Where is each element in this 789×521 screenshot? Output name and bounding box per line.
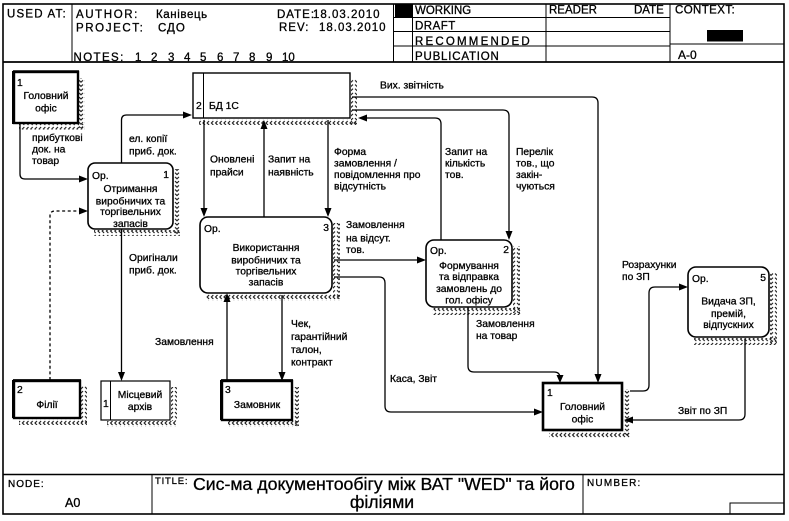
svg-text:6: 6 (217, 52, 223, 64)
svg-text:10: 10 (282, 52, 295, 64)
svg-text:запасів: запасів (113, 219, 148, 230)
svg-text:REV:: REV: (279, 22, 309, 34)
svg-text:тов., що: тов., що (516, 159, 555, 170)
svg-text:повідомлення про: повідомлення про (334, 170, 421, 181)
svg-text:талон,: талон, (291, 345, 322, 356)
svg-text:офіс: офіс (35, 103, 57, 115)
svg-text:архів: архів (128, 402, 153, 413)
svg-text:1: 1 (17, 78, 23, 89)
svg-text:та відправка: та відправка (439, 272, 499, 283)
svg-text:відпускних: відпускних (703, 320, 754, 331)
svg-text:замовлень до: замовлень до (436, 284, 502, 295)
svg-text:Формування: Формування (439, 261, 499, 272)
svg-text:чуються: чуються (516, 182, 555, 193)
svg-text:Головний: Головний (24, 91, 69, 102)
svg-text:наявність: наявність (268, 168, 314, 179)
svg-text:виробничих та: виробничих та (231, 255, 301, 267)
svg-text:Замовлення: Замовлення (476, 319, 535, 330)
svg-text:приб. док.: приб. док. (129, 265, 177, 277)
svg-text:8: 8 (249, 52, 255, 64)
svg-text:1: 1 (135, 52, 141, 64)
svg-text:запасів: запасів (249, 278, 284, 289)
svg-text:Місцевий: Місцевий (118, 390, 163, 401)
svg-text:СДО: СДО (158, 23, 186, 35)
svg-text:Чек,: Чек, (291, 319, 311, 330)
svg-text:Замовлення: Замовлення (155, 337, 214, 348)
svg-text:Розрахунки: Розрахунки (622, 260, 677, 271)
svg-text:замовлення /: замовлення / (334, 159, 397, 170)
svg-text:Запит на: Запит на (445, 147, 488, 158)
svg-text:БД 1С: БД 1С (209, 101, 239, 112)
svg-text:1: 1 (547, 388, 553, 399)
svg-text:док. на: док. на (32, 145, 66, 156)
svg-text:премій,: премій, (711, 309, 746, 320)
svg-text:на відсут.: на відсут. (346, 234, 391, 245)
svg-text:Використання: Використання (233, 243, 300, 254)
svg-text:виробничих та: виробничих та (96, 196, 166, 208)
svg-text:Перелік: Перелік (516, 147, 554, 158)
svg-text:Форма: Форма (334, 147, 366, 158)
svg-text:NOTES:: NOTES: (74, 52, 125, 64)
svg-text:9: 9 (266, 52, 272, 64)
svg-text:18.03.2010: 18.03.2010 (313, 9, 381, 21)
svg-text:гол. офісу: гол. офісу (445, 295, 493, 307)
svg-text:Головний: Головний (560, 402, 605, 413)
svg-text:NODE:: NODE: (8, 479, 45, 490)
svg-text:товар: товар (32, 156, 59, 167)
svg-text:PROJECT:: PROJECT: (76, 23, 144, 35)
svg-text:DATE:: DATE: (277, 9, 315, 21)
svg-text:Оновлені: Оновлені (210, 155, 254, 166)
svg-text:офіс: офіс (572, 414, 594, 426)
svg-text:A-0: A-0 (678, 48, 697, 62)
svg-text:Запит на: Запит на (268, 155, 311, 166)
svg-text:Замовник: Замовник (234, 400, 281, 411)
svg-text:філіями: філіями (350, 492, 414, 512)
svg-text:Ор.: Ор. (430, 246, 447, 257)
svg-text:контракт: контракт (291, 358, 333, 369)
svg-text:TITLE:: TITLE: (155, 476, 188, 487)
svg-text:відсутність: відсутність (334, 182, 386, 193)
svg-text:закін-: закін- (516, 170, 542, 181)
svg-text:Каса, Звіт: Каса, Звіт (390, 374, 437, 385)
svg-text:CONTEXT:: CONTEXT: (675, 5, 735, 17)
svg-text:тов.: тов. (346, 245, 365, 256)
svg-text:2: 2 (503, 245, 509, 256)
svg-text:PUBLICATION: PUBLICATION (415, 51, 500, 63)
svg-text:NUMBER:: NUMBER: (587, 478, 642, 489)
svg-text:Оригінали: Оригінали (129, 253, 178, 264)
svg-text:READER: READER (549, 5, 597, 17)
svg-text:прибуткові: прибуткові (32, 132, 83, 144)
svg-text:3: 3 (323, 223, 329, 234)
svg-text:торгівельних: торгівельних (100, 207, 162, 218)
svg-text:приб. док.: приб. док. (129, 146, 177, 158)
svg-text:тов.: тов. (445, 170, 464, 181)
svg-text:DATE: DATE (634, 5, 664, 17)
svg-text:RECOMMENDED: RECOMMENDED (415, 36, 532, 48)
svg-text:3: 3 (225, 385, 231, 396)
svg-text:ел. копії: ел. копії (129, 134, 167, 145)
svg-text:5: 5 (760, 273, 766, 284)
svg-text:Канівець: Канівець (156, 9, 208, 21)
svg-text:на товар: на товар (476, 331, 518, 342)
svg-text:Вих. звітність: Вих. звітність (380, 81, 444, 92)
svg-text:гарантійний: гарантійний (291, 332, 348, 343)
svg-text:3: 3 (168, 52, 174, 64)
svg-text:кількість: кількість (445, 159, 485, 170)
svg-text:5: 5 (200, 52, 206, 64)
svg-text:2: 2 (196, 101, 202, 112)
svg-text:Видача ЗП,: Видача ЗП, (701, 297, 756, 308)
svg-text:A0: A0 (65, 496, 80, 510)
svg-text:7: 7 (233, 52, 239, 64)
svg-text:Звіт по ЗП: Звіт по ЗП (678, 406, 727, 417)
svg-text:WORKING: WORKING (415, 5, 471, 17)
svg-text:USED AT:: USED AT: (7, 9, 67, 21)
svg-text:прайси: прайси (210, 168, 244, 179)
svg-text:1: 1 (163, 170, 169, 181)
svg-text:Отримання: Отримання (104, 184, 158, 195)
svg-text:4: 4 (184, 52, 191, 64)
svg-text:2: 2 (17, 385, 23, 396)
svg-text:DRAFT: DRAFT (415, 21, 456, 33)
svg-text:1: 1 (103, 399, 109, 410)
svg-text:Філії: Філії (36, 400, 57, 411)
svg-text:2: 2 (151, 52, 157, 64)
svg-text:Ор.: Ор. (692, 274, 709, 285)
svg-text:18.03.2010: 18.03.2010 (319, 22, 387, 34)
svg-text:торгівельних: торгівельних (236, 267, 298, 278)
svg-text:Замовлення: Замовлення (346, 220, 405, 231)
svg-text:Сис-ма документообігу між ВАТ: Сис-ма документообігу між ВАТ "WED" та й… (193, 474, 575, 494)
svg-text:по ЗП: по ЗП (622, 272, 650, 283)
svg-text:AUTHOR:: AUTHOR: (76, 9, 139, 21)
svg-text:Ор.: Ор. (92, 171, 109, 182)
svg-text:Ор.: Ор. (204, 224, 221, 235)
